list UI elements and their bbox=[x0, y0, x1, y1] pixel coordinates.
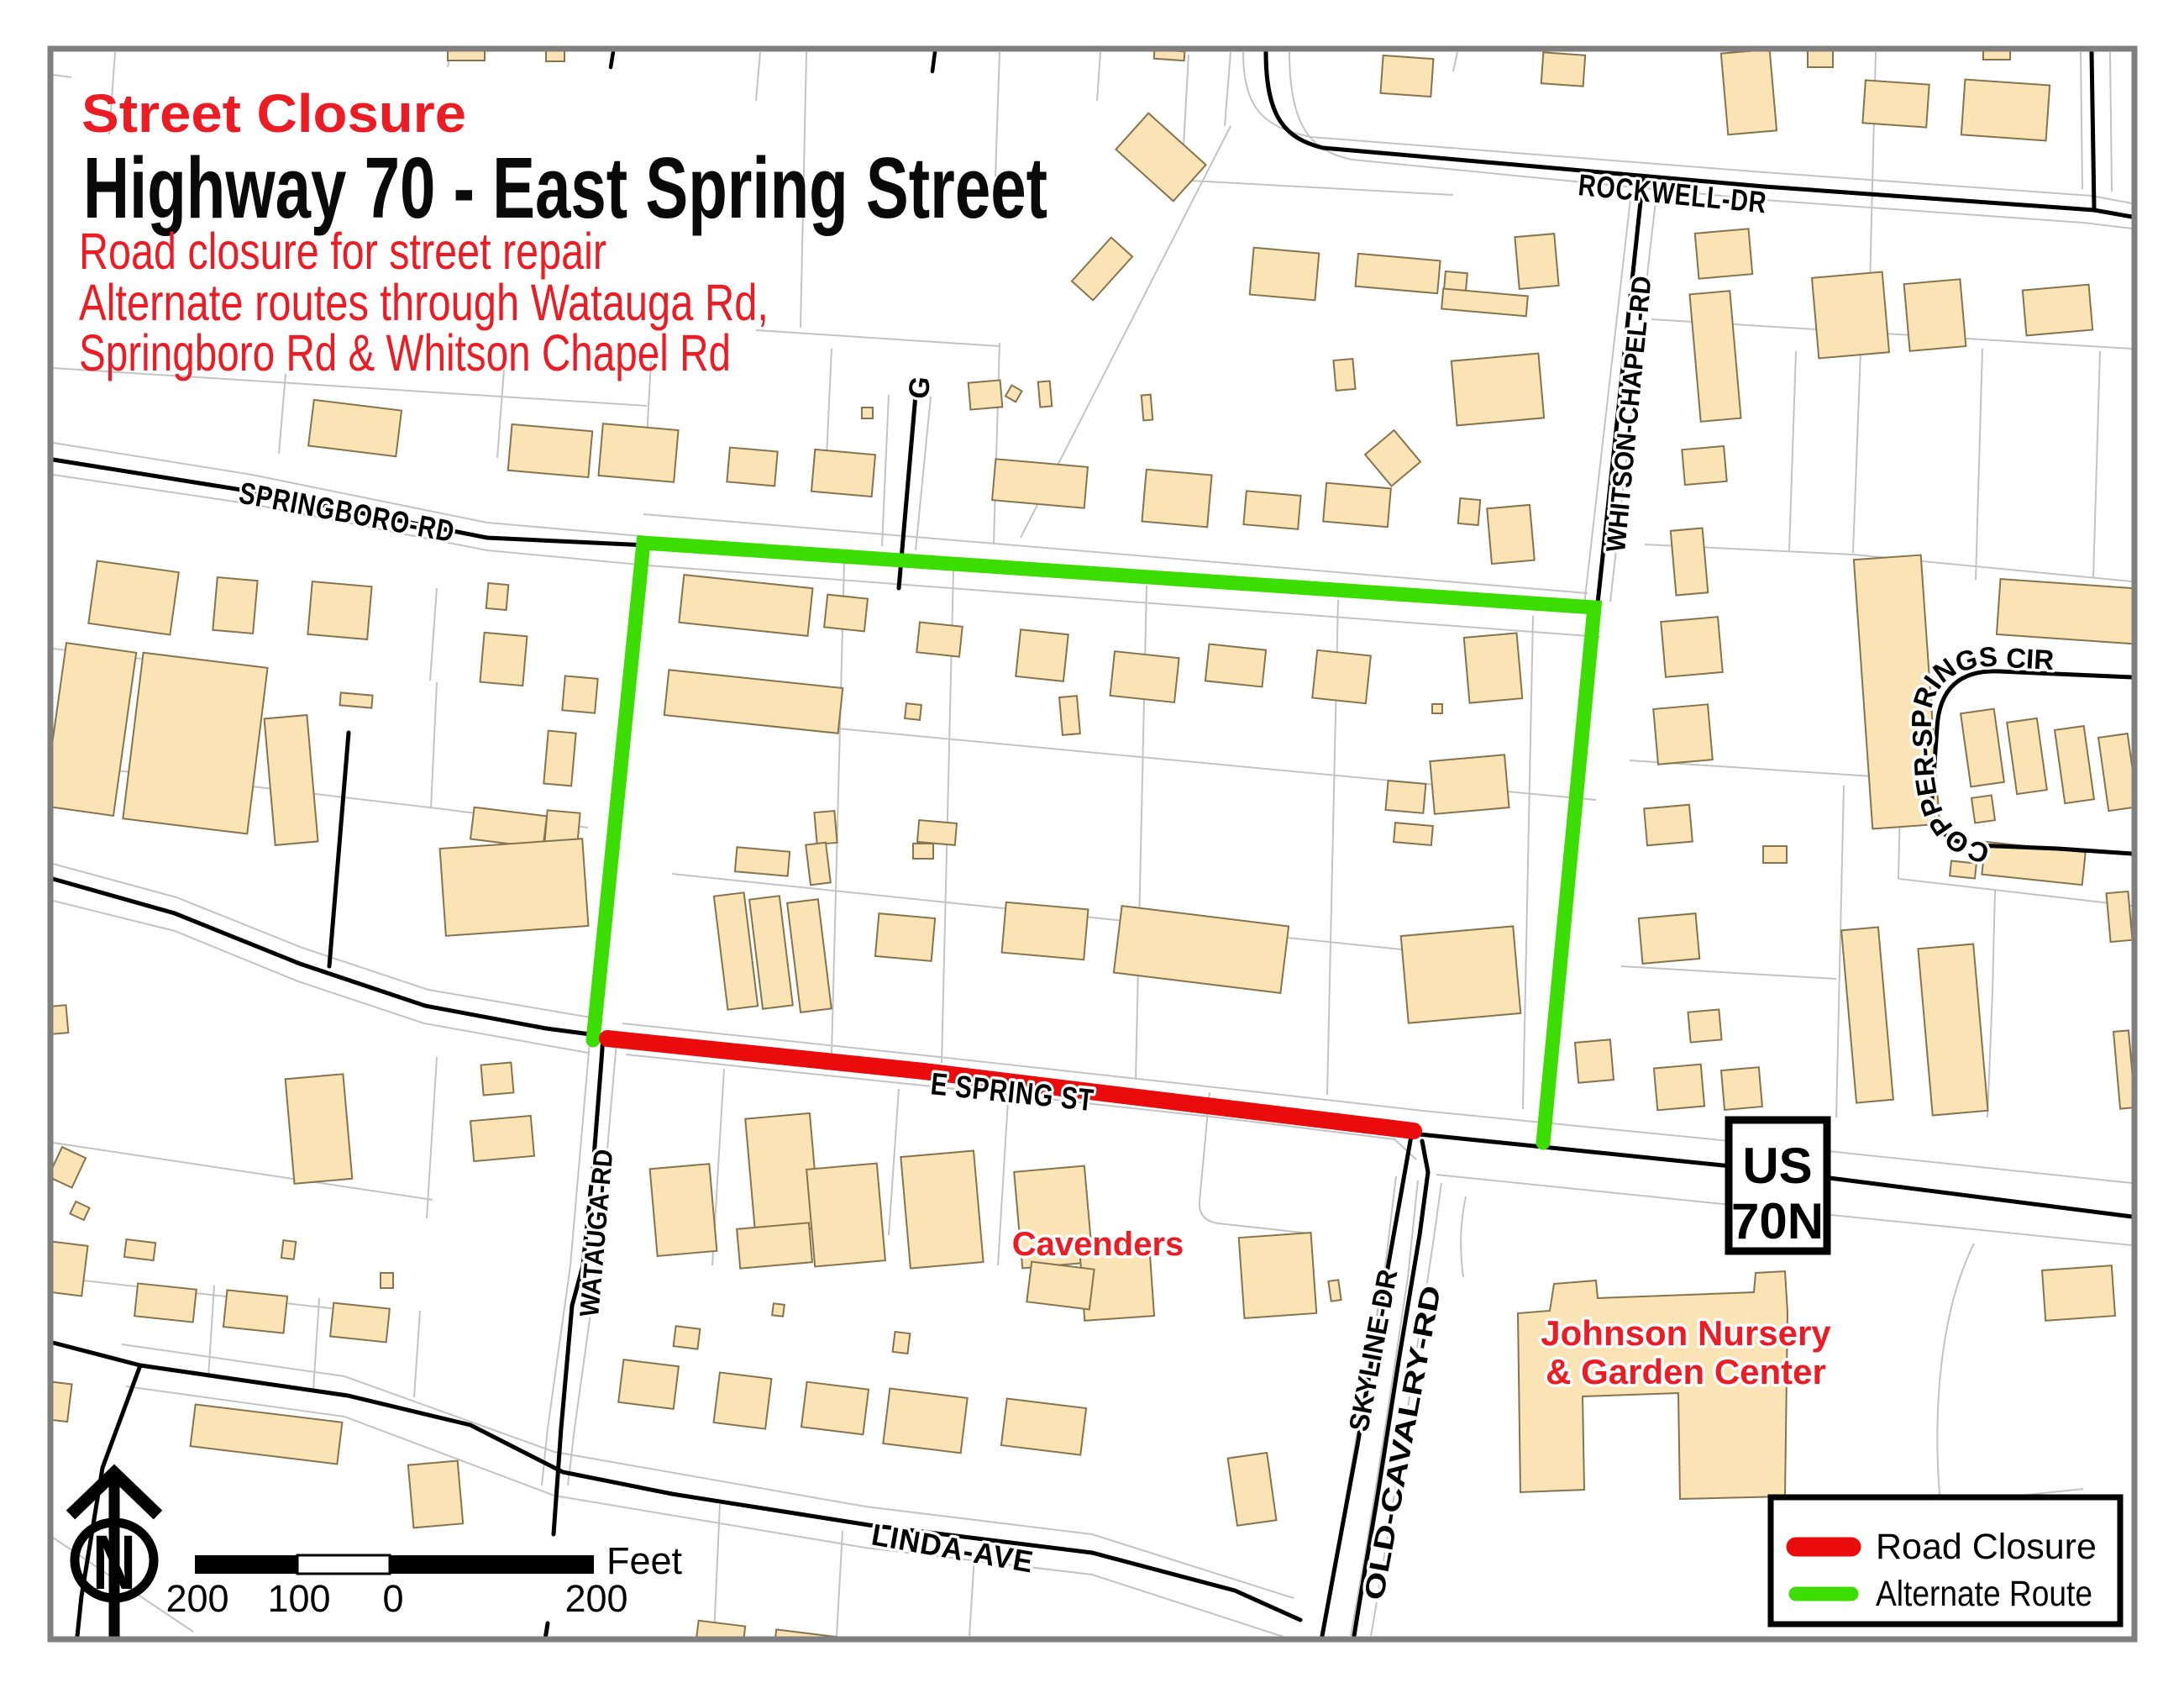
svg-text:200: 200 bbox=[564, 1577, 627, 1620]
svg-text:US: US bbox=[1742, 1138, 1812, 1194]
svg-text:Cavenders: Cavenders bbox=[1012, 1226, 1184, 1263]
svg-text:Road Closure: Road Closure bbox=[1876, 1527, 2097, 1567]
svg-text:Springboro Rd & Whitson Chapel: Springboro Rd & Whitson Chapel Rd bbox=[79, 324, 731, 381]
svg-text:Alternate Route: Alternate Route bbox=[1876, 1574, 2092, 1614]
svg-text:70N: 70N bbox=[1731, 1193, 1824, 1249]
svg-text:Road closure for street repair: Road closure for street repair bbox=[79, 223, 606, 280]
svg-text:G: G bbox=[902, 375, 937, 401]
svg-text:Johnson Nursery: Johnson Nursery bbox=[1541, 1313, 1831, 1353]
svg-text:Feet: Feet bbox=[606, 1539, 683, 1582]
svg-text:200: 200 bbox=[165, 1577, 228, 1620]
svg-text:Highway 70 - East Spring Stree: Highway 70 - East Spring Street bbox=[83, 139, 1047, 236]
svg-text:Alternate routes through Watau: Alternate routes through Watauga Rd, bbox=[79, 274, 769, 331]
svg-text:& Garden Center: & Garden Center bbox=[1546, 1352, 1826, 1391]
svg-text:100: 100 bbox=[267, 1577, 330, 1620]
svg-text:N: N bbox=[92, 1520, 136, 1606]
svg-text:Street Closure: Street Closure bbox=[81, 83, 466, 144]
svg-text:0: 0 bbox=[382, 1577, 403, 1620]
